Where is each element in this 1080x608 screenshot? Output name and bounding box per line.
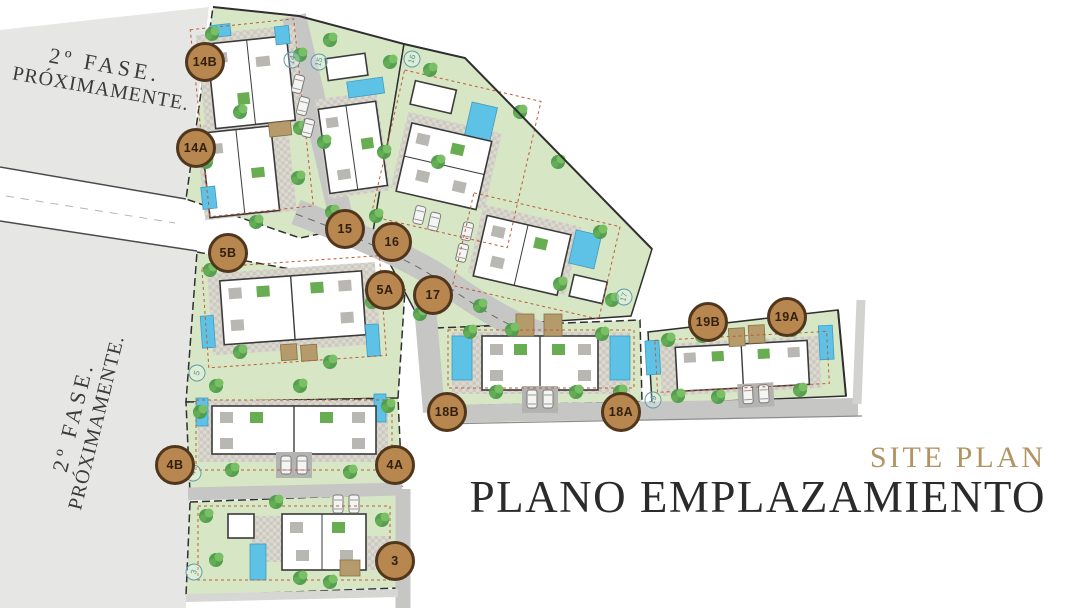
plot-badge-14A[interactable]: 14A — [176, 128, 216, 168]
pool-3 — [250, 544, 266, 580]
site-plan-page: 2º FASE. PRÓXIMAMENTE. 2º FASE. PRÓXIMAM… — [0, 0, 1080, 608]
plot-badge-19B[interactable]: 19B — [688, 302, 728, 342]
building-15 — [318, 101, 387, 193]
pool-18a — [610, 336, 630, 380]
car-18b — [527, 390, 537, 408]
pergola-19a — [748, 325, 765, 344]
plot-badge-4A[interactable]: 4A — [375, 445, 415, 485]
plot-badge-19A[interactable]: 19A — [767, 297, 807, 337]
pool-5a — [365, 324, 380, 357]
pergola-19b — [728, 328, 745, 347]
plot-badge-4B[interactable]: 4B — [155, 445, 195, 485]
car-3a — [333, 495, 343, 513]
pergola-18a — [544, 314, 562, 336]
pool-5b — [200, 315, 215, 348]
plot-badge-5A[interactable]: 5A — [365, 270, 405, 310]
garage-3 — [228, 514, 254, 538]
plot-badge-18B[interactable]: 18B — [427, 392, 467, 432]
garage-15 — [325, 53, 368, 80]
plot-badge-3[interactable]: 3 — [375, 541, 415, 581]
road-south-of-18-19 — [436, 407, 858, 414]
car-19a — [758, 385, 769, 403]
car-18a — [543, 390, 553, 408]
plot-badge-14B[interactable]: 14B — [185, 42, 225, 82]
plot-badge-18A[interactable]: 18A — [601, 392, 641, 432]
pool-19a — [818, 325, 834, 360]
phase2-area-left — [0, 221, 197, 608]
car-4a — [297, 456, 307, 474]
plot-badge-17[interactable]: 17 — [413, 275, 453, 315]
site-plan-map — [0, 0, 1080, 608]
pergola-5a — [300, 344, 317, 361]
pool-18b — [452, 336, 472, 380]
car-4b — [281, 456, 291, 474]
car-3b — [349, 495, 359, 513]
plot-badge-15[interactable]: 15 — [325, 209, 365, 249]
phase2-area-top-left — [0, 7, 209, 199]
pergola-14 — [268, 121, 291, 137]
road-between-4-and-3 — [188, 489, 402, 494]
plot-badge-16[interactable]: 16 — [372, 222, 412, 262]
pergola-5b — [280, 344, 297, 361]
plot-badge-5B[interactable]: 5B — [208, 233, 248, 273]
car-19b — [742, 385, 753, 403]
road-east-curb — [857, 300, 861, 404]
pool-19b — [645, 340, 661, 375]
pool-14a — [201, 186, 217, 209]
pool-14b-east — [274, 25, 290, 44]
pergola-3 — [340, 560, 360, 576]
road-south-stub — [186, 593, 398, 598]
